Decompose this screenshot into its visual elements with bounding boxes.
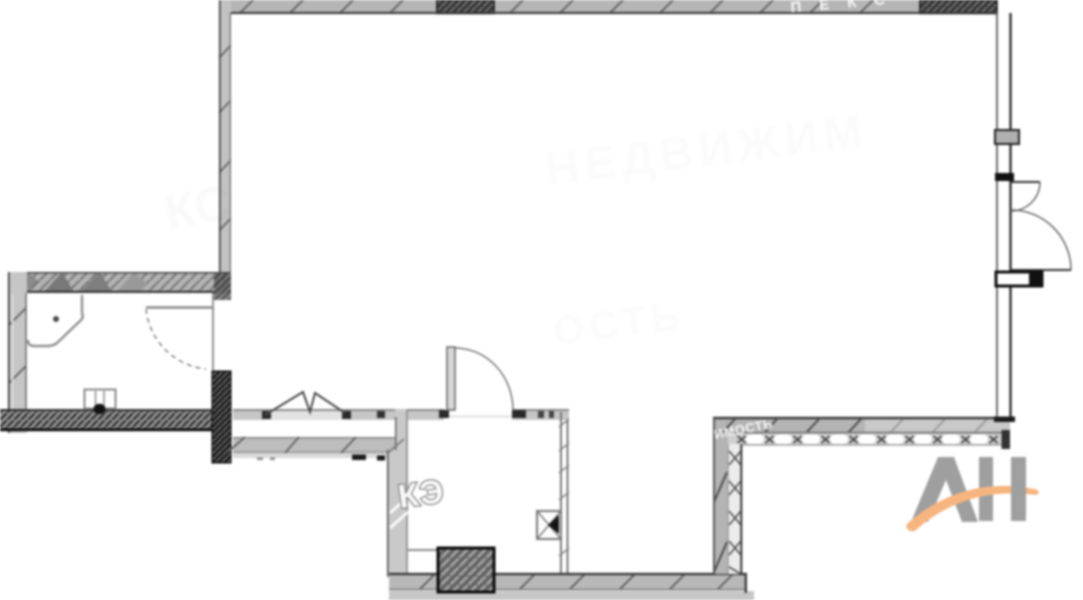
svg-text:КС: КС bbox=[160, 174, 235, 241]
svg-text:КЭ: КЭ bbox=[396, 472, 447, 515]
